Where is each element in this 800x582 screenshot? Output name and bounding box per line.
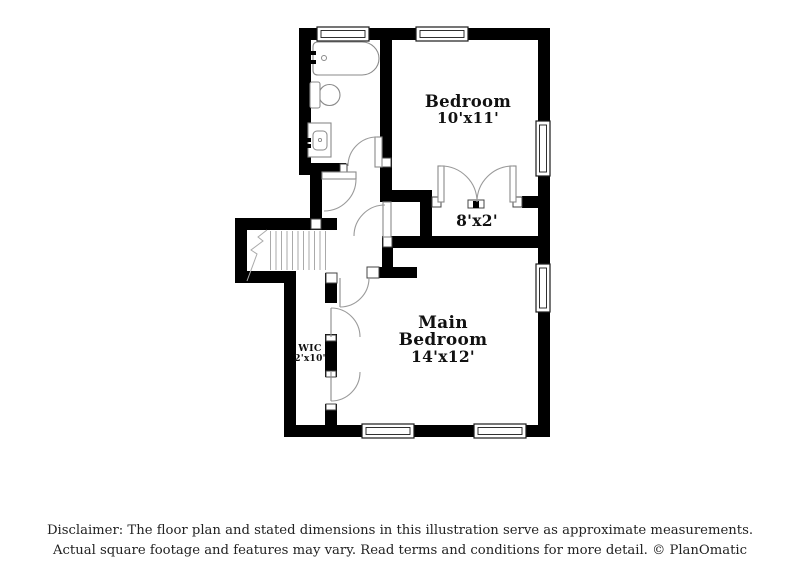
- wic-name: WIC: [282, 344, 338, 354]
- window-bedroom-right: [536, 121, 550, 176]
- room-label-main-bedroom: Main Bedroom 14'x12': [388, 315, 498, 365]
- sink-vanity-icon: [307, 123, 331, 157]
- walls: [235, 28, 550, 437]
- wall-hallway-left: [310, 170, 322, 218]
- hall-dims: 8'x2': [437, 213, 517, 229]
- room-label-bedroom: Bedroom 10'x11': [403, 93, 533, 126]
- bathroom-door: [348, 137, 382, 167]
- wall-mainbedroom-top: [382, 236, 538, 248]
- stairs-door: [322, 172, 356, 211]
- double-door-center-post: [473, 201, 479, 208]
- window-mainbedroom-bottom-right: [474, 424, 526, 438]
- wall-right: [538, 28, 550, 437]
- room-label-wic: WIC 2'x10': [282, 344, 338, 364]
- window-mainbedroom-bottom-left: [362, 424, 414, 438]
- disclaimer-line-2: Actual square footage and features may v…: [0, 541, 800, 561]
- window-mainbedroom-right: [536, 264, 550, 312]
- bedroom-name: Bedroom: [403, 93, 533, 110]
- bedroom-double-door-left: [438, 166, 477, 202]
- floor-plan-page: Bedroom 10'x11' 8'x2' Main Bedroom 14'x1…: [0, 0, 800, 582]
- disclaimer-line-1: Disclaimer: The floor plan and stated di…: [0, 521, 800, 541]
- windows: [317, 27, 550, 438]
- wic-dims: 2'x10': [282, 354, 338, 364]
- window-bedroom-top: [416, 27, 468, 41]
- wic-door-upper: [331, 308, 360, 337]
- bedroom-dims: 10'x11': [403, 110, 533, 126]
- corridor-door: [354, 202, 391, 237]
- main-bedroom-name: Main Bedroom: [388, 315, 498, 348]
- wall-stairs-top: [235, 218, 337, 230]
- bedroom-double-door-right: [477, 166, 516, 202]
- floor-plan-drawing: [0, 0, 800, 582]
- wall-entry-stub: [379, 267, 417, 278]
- bathtub-icon: [310, 42, 379, 75]
- wall-stairs-bottom: [235, 271, 296, 283]
- disclaimer-text: Disclaimer: The floor plan and stated di…: [0, 521, 800, 560]
- main-bedroom-dims: 14'x12': [388, 348, 498, 365]
- window-bathroom-top: [317, 27, 369, 41]
- wall-bath-bedroom-separator: [380, 40, 392, 202]
- toilet-icon: [310, 82, 340, 108]
- room-label-hall: 8'x2': [437, 213, 517, 229]
- wall-bedroom-bottom-right: [522, 196, 538, 208]
- mainbedroom-entry-door: [340, 278, 369, 307]
